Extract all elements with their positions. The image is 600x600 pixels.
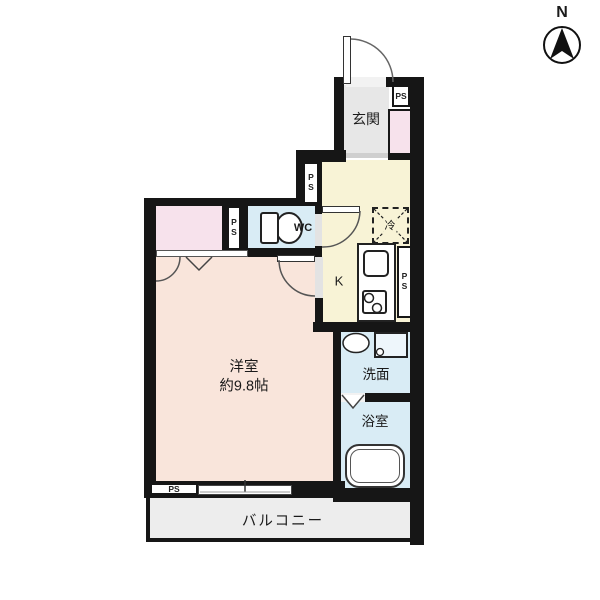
ps-label: PS xyxy=(400,272,409,292)
mainroom-door-leaf xyxy=(277,255,315,262)
bathtub-inner-rim xyxy=(350,449,400,483)
compass-needle-icon xyxy=(550,28,574,59)
compass-circle xyxy=(544,27,580,63)
kitchen-label: K xyxy=(335,274,344,289)
main-room-floor-ext xyxy=(315,332,333,481)
wall-wash-bath-divider xyxy=(365,393,410,402)
ps-label: PS xyxy=(230,218,239,238)
ps-box-kitchen-counter: PS xyxy=(397,246,412,318)
ps-label: PS xyxy=(307,173,316,193)
wall-washroom-left xyxy=(333,332,341,500)
ps-box-genkan: PS xyxy=(392,85,410,107)
entrance-door-leaf xyxy=(343,36,351,84)
wall-closet-top xyxy=(144,198,248,206)
ps-label: PS xyxy=(395,91,406,101)
doorway-wc xyxy=(315,214,322,246)
doorway-bathroom xyxy=(341,393,365,402)
genkan-pink-strip xyxy=(388,109,410,157)
doorway-mainroom xyxy=(315,257,323,298)
closet-area xyxy=(156,206,222,250)
doorway-entrance xyxy=(346,77,386,87)
washroom-label: 洗面 xyxy=(363,363,390,383)
closet-door-track xyxy=(156,250,248,257)
ps-box-kitchen-left: PS xyxy=(303,162,319,204)
wall-bathroom-bottom xyxy=(333,488,410,502)
wc-label: WC xyxy=(294,222,312,234)
genkan-threshold xyxy=(346,153,388,158)
entrance-door-arc xyxy=(351,39,393,82)
balcony-window xyxy=(198,485,292,495)
wall-right-outer xyxy=(410,77,424,545)
stove xyxy=(362,290,387,314)
ps-label: PS xyxy=(168,484,179,494)
wall-left-outer xyxy=(144,198,156,483)
kitchen-sink xyxy=(363,250,389,277)
wall-kitchen-left-mid xyxy=(296,162,303,206)
compass-north-label: N xyxy=(556,4,568,22)
washing-machine xyxy=(374,332,408,358)
wall-genkan-bottom-right-stub xyxy=(388,153,410,160)
wc-door-leaf xyxy=(322,206,360,213)
bathroom-label: 浴室 xyxy=(362,410,389,430)
wall-ps-wc-divider xyxy=(241,206,248,250)
floor-plan-canvas: PS PS PS PS PS xyxy=(0,0,600,600)
balcony-label: バルコニー xyxy=(242,510,324,531)
ps-box-closet-side: PS xyxy=(227,206,241,250)
genkan-label: 玄関 xyxy=(352,109,380,129)
main-room-size-label: 約9.8帖 xyxy=(219,375,268,396)
ps-box-balcony-wall: PS xyxy=(150,483,198,495)
wall-wc-kitchen-stub-top xyxy=(315,206,322,214)
wall-washroom-top xyxy=(313,322,424,332)
refrigerator-label: 冷 xyxy=(384,217,397,233)
main-room-label: 洋室 xyxy=(230,356,259,377)
